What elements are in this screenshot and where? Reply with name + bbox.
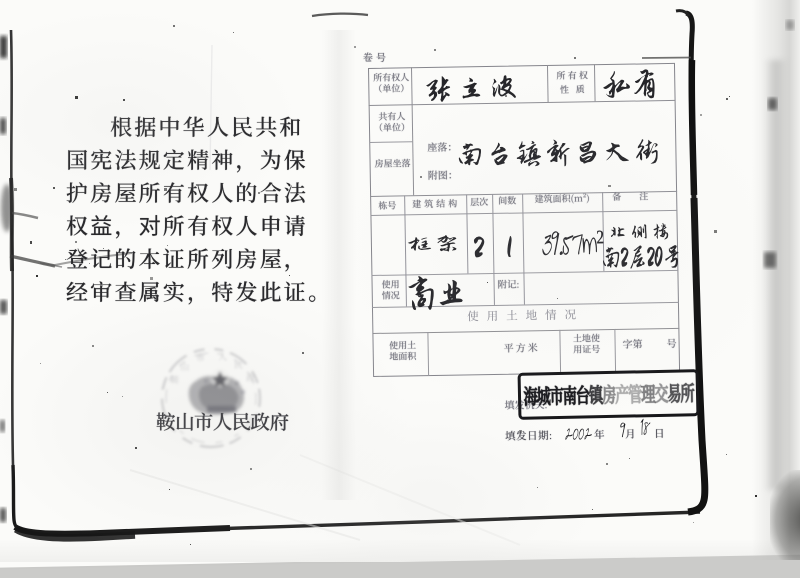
svg-text:人: 人 <box>218 350 227 363</box>
svg-text:市: 市 <box>196 351 205 364</box>
svg-text:民: 民 <box>234 358 243 371</box>
svg-text:山: 山 <box>180 360 189 373</box>
svg-text:政: 政 <box>246 371 255 384</box>
svg-text:鞍: 鞍 <box>170 373 179 386</box>
